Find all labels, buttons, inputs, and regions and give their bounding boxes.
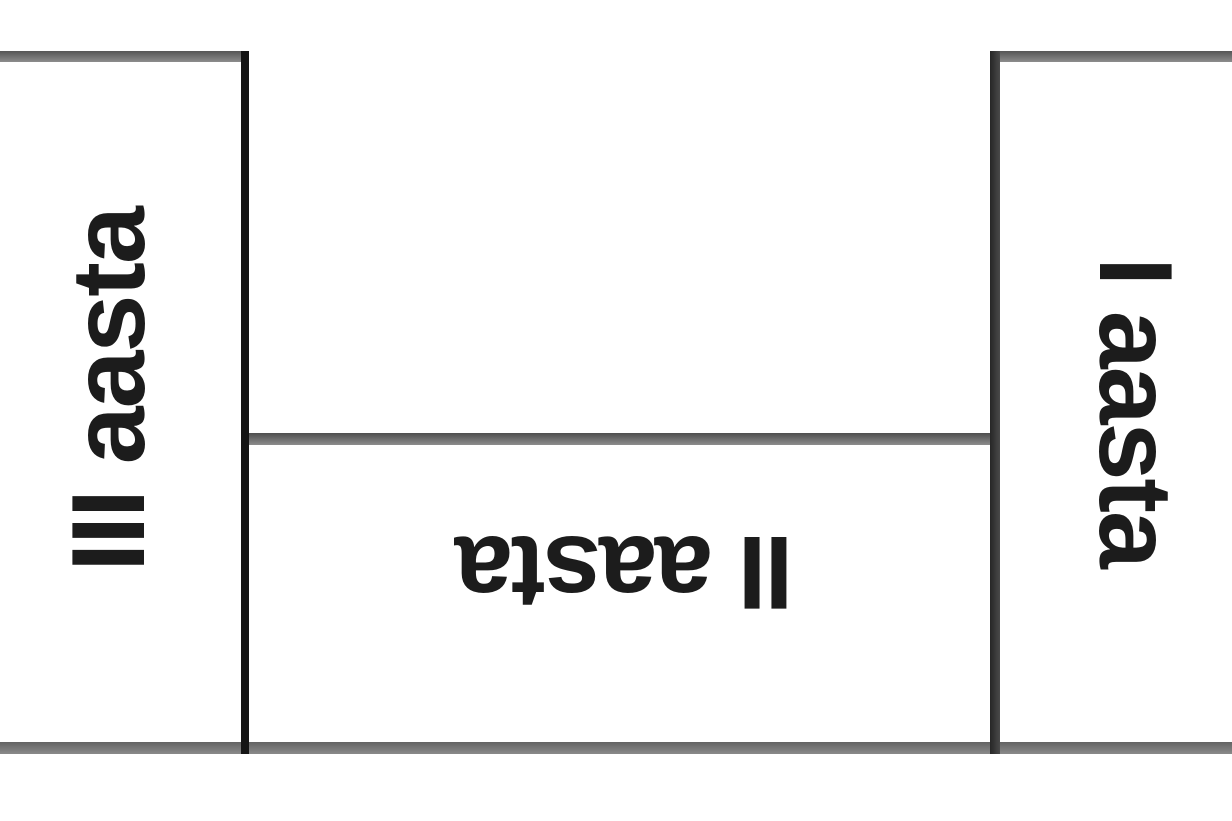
year3-label: III aasta	[57, 208, 161, 572]
study-years-diagram: III aasta II aasta I aasta	[0, 0, 1232, 821]
year1-label: I aasta	[1083, 257, 1187, 567]
middle-divider-line	[246, 433, 998, 445]
top-left-border-line	[0, 51, 249, 62]
right-column-divider-line	[990, 51, 1000, 754]
top-right-border-line	[991, 51, 1232, 62]
left-column-divider-line	[241, 51, 249, 754]
year2-label: II aasta	[457, 520, 794, 624]
bottom-border-line	[0, 742, 1232, 754]
